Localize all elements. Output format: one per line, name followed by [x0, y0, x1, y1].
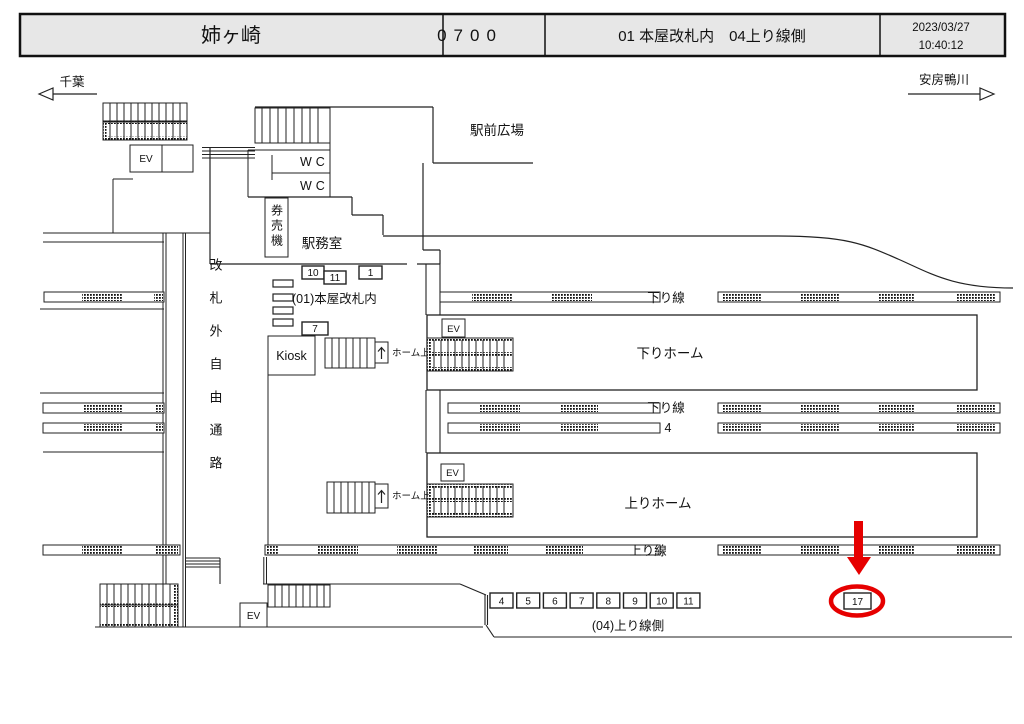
- building-stairs: [255, 108, 330, 143]
- svg-text:4: 4: [499, 597, 505, 608]
- svg-text:7: 7: [579, 597, 585, 608]
- down-line-label-2: 下り線: [647, 400, 685, 415]
- device-box-10[interactable]: 10: [302, 266, 324, 279]
- up-line-label: 上り線: [629, 543, 667, 558]
- position-box-11[interactable]: 11: [677, 593, 700, 608]
- position-box-9[interactable]: 9: [624, 593, 647, 608]
- ev-label: EV: [247, 611, 261, 622]
- header-station-name: 姉ヶ崎: [201, 24, 261, 47]
- wc-upper-label: WC: [300, 155, 329, 169]
- concourse-stairs-down: ホーム上: [325, 338, 430, 368]
- free-passage-label: 改札外自由通路: [208, 258, 223, 489]
- down-line-label-1: 下り線: [647, 290, 685, 305]
- track-down-line-2: 下り線 4: [43, 400, 1000, 435]
- header-time: 10:40:12: [919, 40, 964, 52]
- arrow-left-icon: [39, 88, 53, 100]
- area-label: (04)上り線側: [592, 618, 664, 633]
- wc-lower-label: WC: [300, 179, 329, 193]
- plaza-label: 駅前広場: [470, 122, 524, 138]
- svg-text:11: 11: [683, 597, 694, 608]
- down-platform-stairs: [427, 338, 513, 371]
- header-code: 0700: [437, 26, 503, 45]
- north-wall-corner: [113, 179, 133, 233]
- elevator-south: EV: [240, 603, 267, 627]
- svg-text:7: 7: [312, 324, 318, 335]
- direction-left: 千葉: [39, 75, 97, 100]
- south-concourse-stairs: [268, 585, 330, 607]
- up-platform: EV 上りホーム: [427, 453, 977, 537]
- kiosk-label: Kiosk: [276, 349, 307, 363]
- down-platform: EV 下りホーム: [427, 315, 977, 390]
- gate-area-label: (01)本屋改札内: [292, 292, 377, 306]
- track-4-label: 4: [665, 421, 672, 435]
- station-map-screen: 姉ヶ崎 0700 01 本屋改札内 04上り線側 2023/03/27 10:4…: [0, 0, 1024, 724]
- ticket-machine-label: 券売機: [270, 203, 284, 249]
- device-box-1[interactable]: 1: [359, 266, 382, 279]
- platform-up-note-1: ホーム上: [392, 348, 430, 359]
- header-date: 2023/03/27: [912, 22, 970, 34]
- position-box-6[interactable]: 6: [543, 593, 566, 608]
- concourse-stairs-up: ホーム上: [327, 482, 430, 513]
- device-box-7[interactable]: 7: [302, 322, 328, 335]
- svg-text:10: 10: [656, 597, 668, 608]
- elevator-north: EV: [130, 145, 193, 172]
- arrow-right-icon: [980, 88, 994, 100]
- street-stairs-south: [100, 584, 178, 627]
- position-box-row: 4 5 6 7 8 9 10 11: [490, 593, 700, 608]
- ev-label: EV: [446, 468, 459, 479]
- direction-right-label: 安房鴨川: [919, 72, 969, 87]
- platform-up-note-2: ホーム上: [392, 491, 430, 502]
- ticket-gates: [273, 280, 293, 326]
- position-box-5[interactable]: 5: [517, 593, 540, 608]
- direction-right: 安房鴨川: [908, 72, 994, 100]
- position-box-17-highlighted[interactable]: 17: [831, 587, 883, 616]
- ticket-machine-box: 券売機: [265, 198, 288, 257]
- header-location: 01 本屋改札内 04上り線側: [618, 28, 806, 45]
- svg-text:10: 10: [307, 268, 319, 279]
- ev-label: EV: [447, 324, 460, 335]
- svg-text:11: 11: [330, 273, 341, 284]
- position-box-8[interactable]: 8: [597, 593, 620, 608]
- svg-text:9: 9: [632, 597, 638, 608]
- direction-left-label: 千葉: [59, 75, 85, 89]
- position-box-10[interactable]: 10: [650, 593, 673, 608]
- up-platform-label: 上りホーム: [624, 496, 691, 511]
- ev-label: EV: [139, 154, 153, 165]
- device-box-11[interactable]: 11: [324, 271, 346, 284]
- svg-text:1: 1: [368, 268, 374, 279]
- station-office-label: 駅務室: [302, 235, 343, 251]
- svg-text:5: 5: [525, 597, 531, 608]
- down-platform-label: 下りホーム: [636, 346, 703, 361]
- svg-text:6: 6: [552, 597, 558, 608]
- position-box-4[interactable]: 4: [490, 593, 513, 608]
- svg-text:8: 8: [606, 597, 612, 608]
- header-bar: 姉ヶ崎 0700 01 本屋改札内 04上り線側 2023/03/27 10:4…: [20, 14, 1005, 56]
- street-stairs-north: [103, 103, 187, 140]
- kiosk: Kiosk: [268, 336, 315, 375]
- position-box-7[interactable]: 7: [570, 593, 593, 608]
- svg-text:17: 17: [852, 597, 864, 608]
- track-down-line-1: 下り線: [44, 290, 1000, 305]
- up-platform-stairs: [427, 484, 513, 517]
